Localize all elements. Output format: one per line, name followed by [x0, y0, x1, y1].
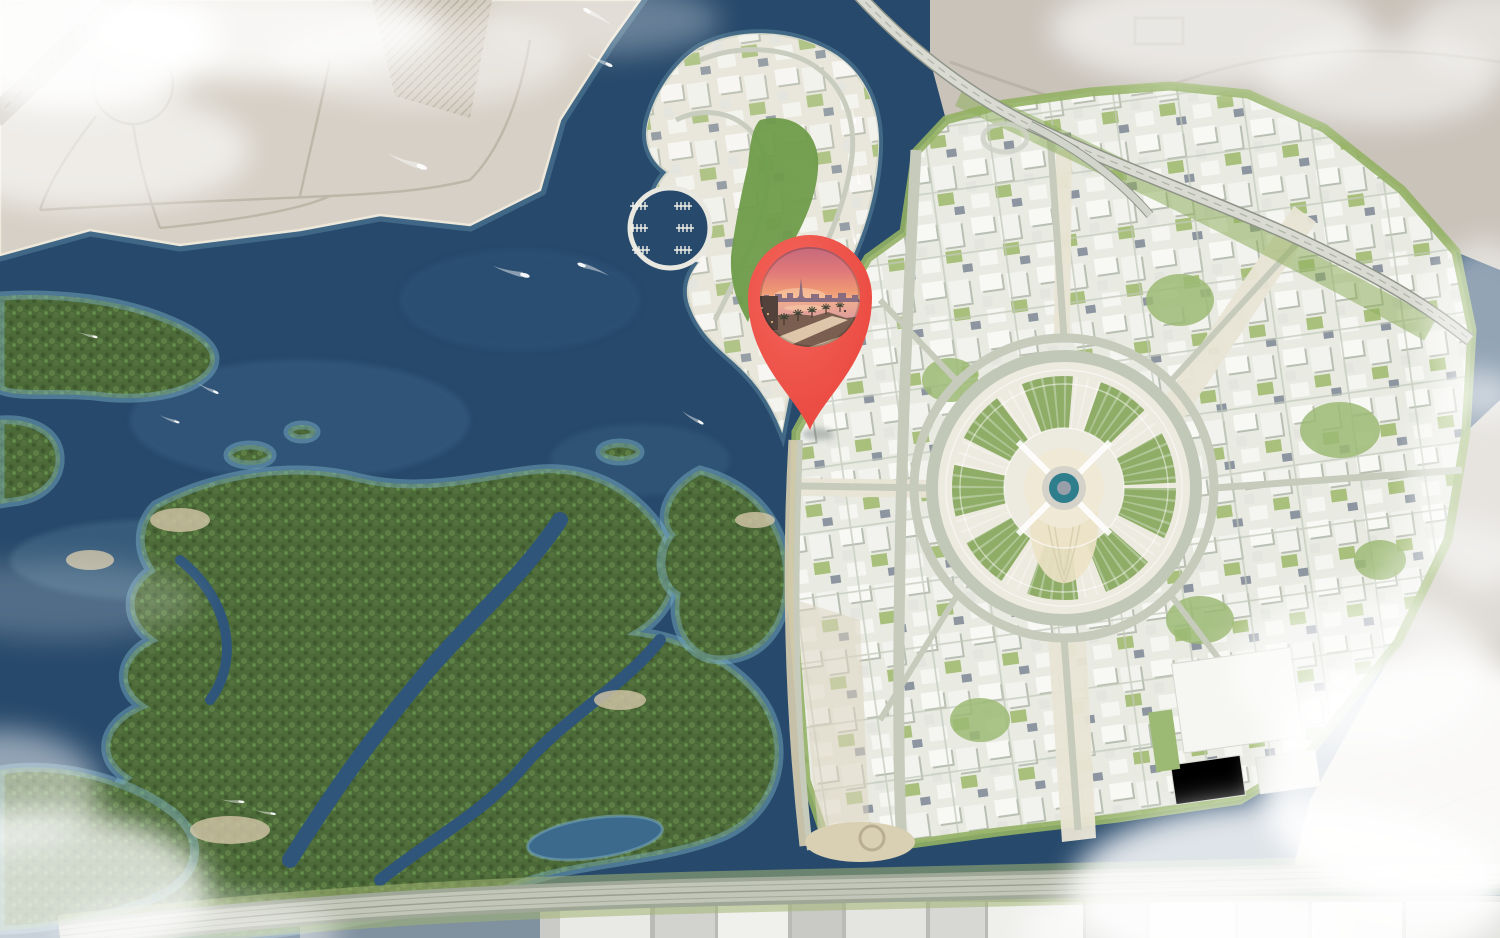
- map-viewport[interactable]: [0, 0, 1500, 938]
- central-dome-plaza: [932, 356, 1196, 620]
- map-canvas[interactable]: [0, 0, 1500, 938]
- pin-shadow: [802, 428, 834, 440]
- park-rest-area: [805, 822, 915, 862]
